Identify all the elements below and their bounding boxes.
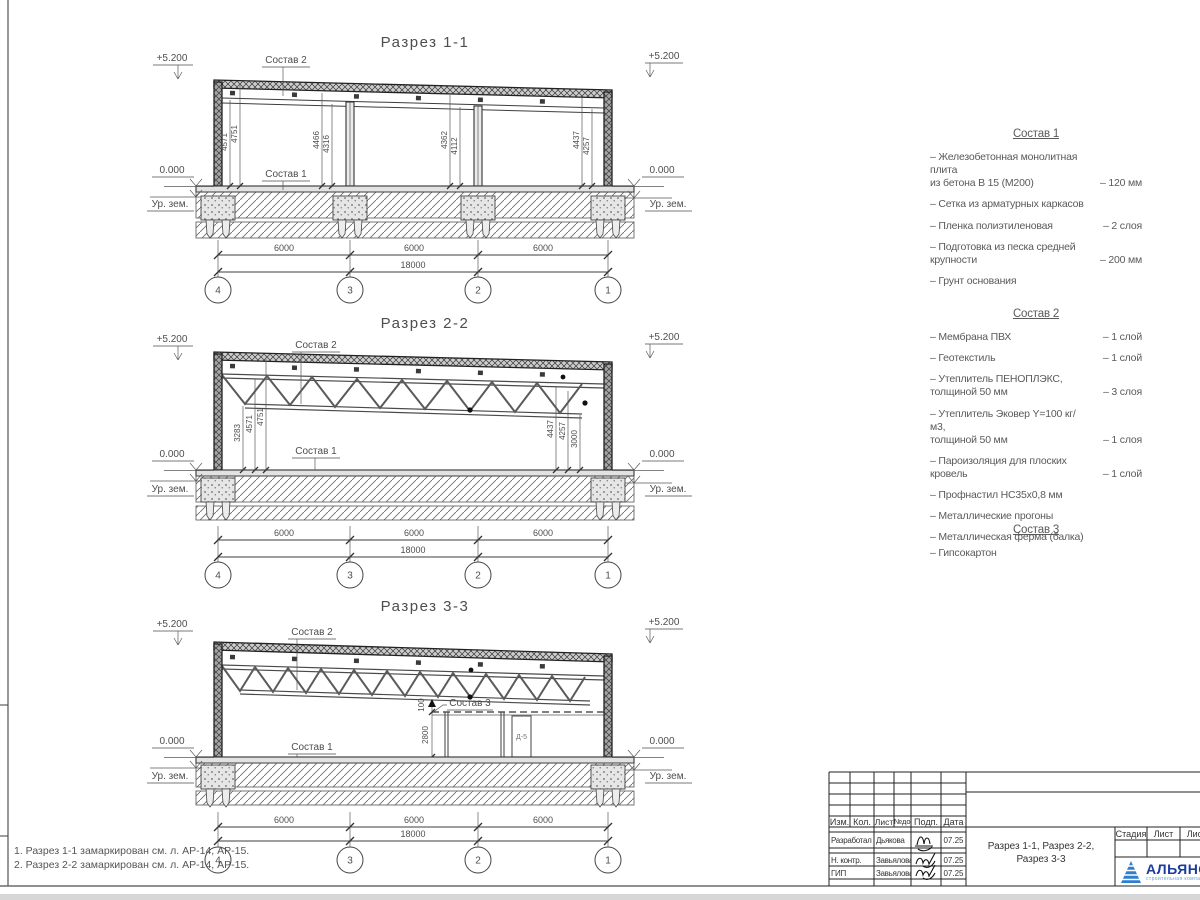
svg-text:4112: 4112 [450,137,459,155]
titleblock-right-header: Лист [1147,829,1180,839]
svg-text:100: 100 [417,698,426,712]
span-dim-text: 6000 [404,528,424,538]
composition-list-1: Состав 1 – Железобетонная монолитная пли… [930,128,1142,296]
composition-item: – Сетка из арматурных каркасов [930,198,1142,211]
svg-text:4466: 4466 [312,131,321,149]
composition-item: – Утеплитель Эковер Y=100 кг/м3, толщино… [930,408,1142,447]
elevation-mark: +5.200 [157,53,188,64]
composition-label: Состав 2 [291,627,333,638]
titleblock-header: №док [894,817,911,827]
footing [591,478,625,502]
company-logo: АЛЬЯНС строительная компания [1120,858,1200,885]
span-dim-text: 6000 [533,243,553,253]
note-line: 1. Разрез 1-1 замаркирован см. л. АР-14,… [14,845,249,859]
elevation-mark: 0.000 [649,736,674,747]
footing [591,765,625,789]
footing [201,478,235,502]
doc-title: Разрез 1-1, Разрез 2-2, [968,842,1114,852]
span-dim-text: 6000 [274,528,294,538]
titleblock-header: Кол. [850,817,874,827]
axis-number: 3 [347,286,353,297]
composition-item: – Геотекстиль – 1 слой [930,352,1142,365]
door-tag: Д-5 [516,734,527,741]
composition-item: – Пленка полиэтиленовая – 2 слоя [930,220,1142,233]
svg-text:4437: 4437 [572,131,581,149]
svg-text:4362: 4362 [440,131,449,149]
section-title: Разрез 3-3 [381,598,470,615]
elevation-mark: +5.200 [649,617,680,628]
titleblock-right-header: Стадия [1115,829,1147,839]
footing [333,196,367,220]
svg-text:4257: 4257 [558,422,567,440]
ground-level-mark: Ур. зем. [650,484,687,495]
span-dim-text: 6000 [274,243,294,253]
composition-label: Состав 1 [291,742,333,753]
titleblock-role: Разработал [831,836,874,846]
titleblock-date: 07.25 [941,856,966,866]
composition-label: Состав 3 [449,698,491,709]
ground-level-mark: Ур. зем. [650,199,687,210]
composition-label: Состав 1 [295,446,337,457]
composition-item: – Подготовка из песка средней крупности … [930,241,1142,267]
logo-name: АЛЬЯНС [1146,862,1200,876]
titleblock-header: Подп. [911,817,941,827]
titleblock-role: ГИП [831,869,874,879]
sheet-notes: 1. Разрез 1-1 замаркирован см. л. АР-14,… [14,845,249,873]
footing [591,196,625,220]
svg-text:3000: 3000 [570,430,579,448]
ground-level-mark: Ур. зем. [152,771,189,782]
total-dim-text: 18000 [400,260,425,270]
titleblock-name: Завьялова [876,856,911,866]
drawing-sheet: Разрез 1-1 +5.200 +5.200 0.000 [0,0,1200,900]
titleblock-right-header: Лист [1180,829,1200,839]
footing [201,196,235,220]
composition-item: – Грунт основания [930,275,1142,288]
titleblock-date: 07.25 [941,836,966,846]
span-dim-text: 6000 [533,815,553,825]
axis-number: 1 [605,856,611,867]
elevation-mark: +5.200 [157,334,188,345]
elevation-mark: 0.000 [159,165,184,176]
svg-text:2800: 2800 [421,726,430,744]
svg-text:4257: 4257 [582,137,591,155]
ground-level-mark: Ур. зем. [152,484,189,495]
section-title: Разрез 2-2 [381,315,470,332]
svg-text:4316: 4316 [322,135,331,153]
composition-label: Состав 2 [265,55,307,66]
elevation-mark: +5.200 [157,619,188,630]
span-dim-text: 6000 [404,243,424,253]
composition-heading: Состав 3 [930,524,1142,536]
elevation-mark: +5.200 [649,51,680,62]
svg-text:4571: 4571 [245,415,254,433]
axis-number: 2 [475,571,481,582]
composition-heading: Состав 2 [930,308,1142,320]
axis-number: 1 [605,571,611,582]
signature [916,853,935,867]
titleblock-date: 07.25 [941,869,966,879]
span-dim-text: 6000 [533,528,553,538]
section-title: Разрез 1-1 [381,34,470,51]
composition-label: Состав 1 [265,169,307,180]
logo-subtitle: строительная компания [1146,876,1200,882]
doc-title: Разрез 3-3 [968,855,1114,865]
elevation-mark: 0.000 [649,449,674,460]
titleblock-header: Изм. [829,817,850,827]
composition-item: – Мембрана ПВХ – 1 слой [930,331,1142,344]
span-dim-text: 6000 [404,815,424,825]
total-dim-text: 18000 [400,545,425,555]
ground-level-mark: Ур. зем. [152,199,189,210]
titleblock-header: Лист [874,817,894,827]
axis-number: 4 [215,571,221,582]
footing [201,765,235,789]
axis-number: 3 [347,571,353,582]
composition-item: – Гипсокартон [930,547,1142,560]
svg-text:3283: 3283 [233,424,242,442]
svg-text:4571: 4571 [220,133,229,151]
elevation-mark: 0.000 [159,449,184,460]
ground-level-mark: Ур. зем. [650,771,687,782]
logo-triangle-icon [1120,860,1142,884]
elevation-mark: 0.000 [159,736,184,747]
titleblock-role: Н. контр. [831,856,874,866]
composition-item: – Профнастил НС35х0,8 мм [930,489,1142,502]
axis-number: 4 [215,286,221,297]
note-line: 2. Разрез 2-2 замаркирован см. л. АР-14,… [14,859,249,873]
axis-number: 1 [605,286,611,297]
svg-text:4751: 4751 [230,125,239,143]
titleblock-name: Дьякова [876,836,911,846]
elevation-mark: 0.000 [649,165,674,176]
composition-item: – Пароизоляция для плоских кровель – 1 с… [930,455,1142,481]
composition-label: Состав 2 [295,340,337,351]
elevation-mark: +5.200 [649,332,680,343]
composition-item: – Металлические прогоны [930,510,1142,523]
axis-number: 2 [475,856,481,867]
titleblock-name: Завьялова [876,869,911,879]
total-dim-text: 18000 [400,829,425,839]
composition-item: – Утеплитель ПЕНОПЛЭКС, толщиной 50 мм –… [930,373,1142,399]
titleblock-header: Дата [941,817,966,827]
axis-number: 2 [475,286,481,297]
svg-text:4437: 4437 [546,420,555,438]
svg-text:4751: 4751 [256,408,265,426]
composition-list-2: Состав 2 – Мембрана ПВХ – 1 слой – Геоте… [930,308,1142,553]
signature [915,837,933,851]
span-dim-text: 6000 [274,815,294,825]
axis-number: 3 [347,856,353,867]
composition-heading: Состав 1 [930,128,1142,140]
composition-item: – Железобетонная монолитная плита из бет… [930,151,1142,190]
footing [461,196,495,220]
composition-list-3: Состав 3 – Гипсокартон [930,524,1142,568]
